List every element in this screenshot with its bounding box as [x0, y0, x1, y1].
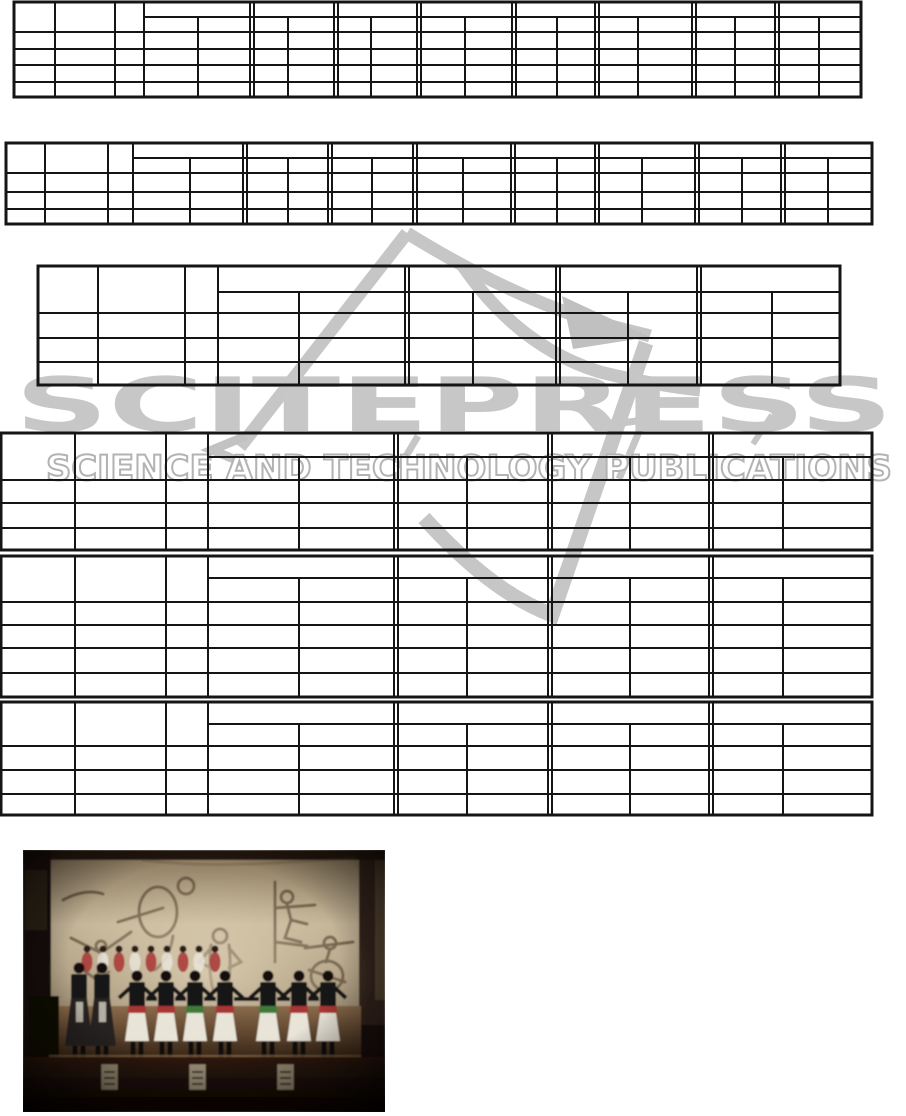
photo-vignette [23, 850, 385, 1112]
document-page: SCITEPRESS SCIENCE AND TECHNOLOGY PUBLIC… [0, 0, 906, 1116]
watermark-tagline-text: SCIENCE AND TECHNOLOGY PUBLICATIONS [46, 449, 892, 489]
logo-right-fold [562, 296, 650, 349]
watermark-brand-text: SCITEPRESS [15, 361, 893, 449]
performance-photo [23, 850, 385, 1112]
